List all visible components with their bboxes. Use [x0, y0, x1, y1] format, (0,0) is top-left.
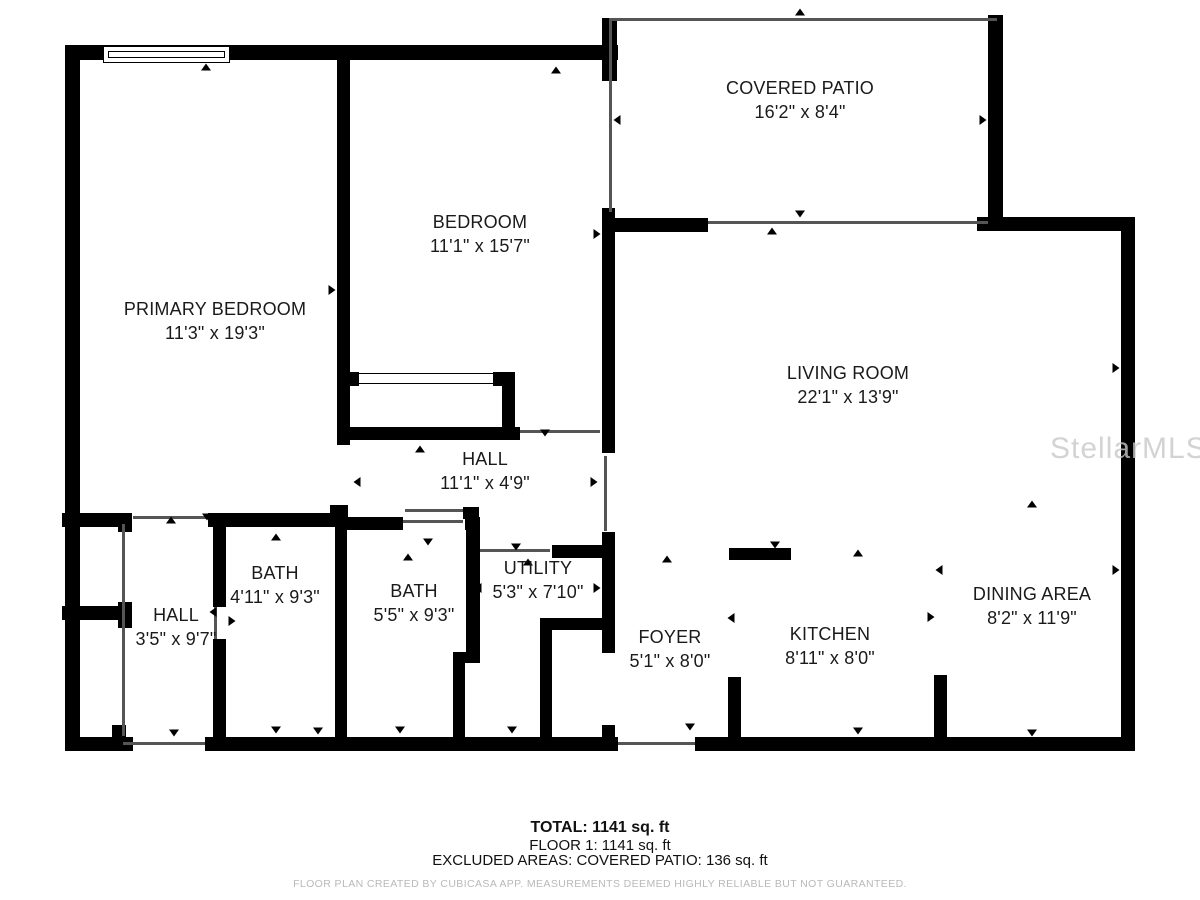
dimension-arrow-icon	[395, 727, 405, 734]
dimension-arrow-icon	[551, 67, 561, 74]
dimension-arrow-icon	[329, 285, 336, 295]
wall-segment	[988, 15, 1003, 228]
wall-segment	[540, 618, 604, 630]
wall-segment	[335, 517, 347, 737]
wall-segment	[695, 737, 1135, 751]
room-dims: 11'3" x 19'3"	[124, 321, 306, 345]
dimension-arrow-icon	[767, 228, 777, 235]
wall-segment	[65, 45, 80, 750]
room-dims: 8'2" x 11'9"	[973, 606, 1091, 630]
total-area-text: TOTAL: 1141 sq. ft	[0, 819, 1200, 837]
dimension-arrow-icon	[403, 554, 413, 561]
disclaimer-text: FLOOR PLAN CREATED BY CUBICASA APP. MEAS…	[0, 878, 1200, 890]
room-name: PRIMARY BEDROOM	[124, 297, 306, 321]
wall-segment	[934, 675, 947, 737]
dimension-arrow-icon	[685, 724, 695, 731]
room-label-bath-1: BATH 4'11" x 9'3"	[230, 561, 320, 609]
dimension-arrow-icon	[72, 300, 79, 310]
room-label-hall-upper: HALL 11'1" x 4'9"	[440, 447, 530, 495]
excluded-area-text: EXCLUDED AREAS: COVERED PATIO: 136 sq. f…	[0, 852, 1200, 869]
dimension-arrow-icon	[271, 727, 281, 734]
room-name: BATH	[230, 561, 320, 585]
room-dims: 22'1" x 13'9"	[787, 385, 909, 409]
dimension-arrow-icon	[354, 477, 361, 487]
dimension-arrow-icon	[728, 613, 735, 623]
wall-segment	[345, 427, 520, 440]
dimension-arrow-icon	[475, 583, 482, 593]
dimension-arrow-icon	[594, 583, 601, 593]
dimension-arrow-icon	[415, 446, 425, 453]
dimension-arrow-icon	[795, 9, 805, 16]
dimension-arrow-icon	[1027, 730, 1037, 737]
wall-segment	[1121, 217, 1135, 750]
wall-segment	[602, 532, 615, 653]
room-label-primary-bedroom: PRIMARY BEDROOM 11'3" x 19'3"	[124, 297, 306, 345]
opening-line	[708, 221, 988, 224]
closet-shelf-line	[358, 373, 494, 384]
opening-line	[604, 456, 607, 531]
room-name: UTILITY	[492, 556, 583, 580]
room-label-hall-lower: HALL 3'5" x 9'7"	[136, 603, 217, 651]
room-label-kitchen: KITCHEN 8'11" x 8'0"	[785, 622, 875, 670]
opening-line	[123, 742, 205, 745]
room-label-foyer: FOYER 5'1" x 8'0"	[630, 625, 711, 673]
dimension-arrow-icon	[608, 363, 615, 373]
dimension-arrow-icon	[980, 115, 987, 125]
dimension-arrow-icon	[591, 477, 598, 487]
dimension-arrow-icon	[614, 115, 621, 125]
wall-segment	[977, 217, 1135, 231]
room-name: DINING AREA	[973, 582, 1091, 606]
dimension-arrow-icon	[853, 728, 863, 735]
stellar-mls-watermark: StellarMLS	[1050, 432, 1200, 466]
dimension-arrow-icon	[511, 544, 521, 551]
dimension-arrow-icon	[770, 542, 780, 549]
wall-segment	[337, 60, 350, 445]
opening-line	[405, 509, 463, 512]
room-dims: 3'5" x 9'7"	[136, 627, 217, 651]
wall-segment	[602, 218, 708, 232]
dimension-arrow-icon	[1113, 363, 1120, 373]
dimension-arrow-icon	[166, 517, 176, 524]
room-dims: 11'1" x 4'9"	[440, 471, 530, 495]
dimension-arrow-icon	[271, 534, 281, 541]
room-name: COVERED PATIO	[726, 76, 874, 100]
dimension-arrow-icon	[229, 616, 236, 626]
wall-segment	[453, 663, 465, 737]
room-dims: 5'5" x 9'3"	[374, 603, 455, 627]
dimension-arrow-icon	[1113, 565, 1120, 575]
floor-plan-canvas: COVERED PATIO 16'2" x 8'4" BEDROOM 11'1"…	[0, 0, 1200, 900]
room-label-covered-patio: COVERED PATIO 16'2" x 8'4"	[726, 76, 874, 124]
room-dims: 5'3" x 7'10"	[492, 580, 583, 604]
room-dims: 16'2" x 8'4"	[726, 100, 874, 124]
dimension-arrow-icon	[202, 514, 212, 521]
wall-segment	[118, 513, 132, 532]
room-label-living-room: LIVING ROOM 22'1" x 13'9"	[787, 361, 909, 409]
room-name: BATH	[374, 579, 455, 603]
room-dims: 8'11" x 8'0"	[785, 646, 875, 670]
dimension-arrow-icon	[795, 211, 805, 218]
opening-line	[609, 20, 612, 212]
room-label-bath-2: BATH 5'5" x 9'3"	[374, 579, 455, 627]
room-name: FOYER	[630, 625, 711, 649]
dimension-arrow-icon	[423, 539, 433, 546]
room-label-bedroom: BEDROOM 11'1" x 15'7"	[430, 210, 530, 258]
room-name: HALL	[440, 447, 530, 471]
room-name: HALL	[136, 603, 217, 627]
dimension-arrow-icon	[169, 730, 179, 737]
window-inner-pane	[108, 51, 225, 58]
wall-segment	[118, 602, 132, 628]
opening-line	[403, 520, 463, 523]
wall-segment	[728, 677, 741, 737]
wall-segment	[213, 639, 226, 737]
room-name: KITCHEN	[785, 622, 875, 646]
wall-segment	[335, 517, 403, 530]
wall-segment	[213, 517, 226, 607]
dimension-arrow-icon	[201, 64, 211, 71]
dimension-arrow-icon	[928, 612, 935, 622]
dimension-arrow-icon	[540, 430, 550, 437]
wall-segment	[602, 208, 615, 453]
wall-segment	[602, 725, 615, 738]
dimension-arrow-icon	[1027, 501, 1037, 508]
room-dims: 5'1" x 8'0"	[630, 649, 711, 673]
room-name: LIVING ROOM	[787, 361, 909, 385]
opening-line	[618, 742, 695, 745]
dimension-arrow-icon	[594, 229, 601, 239]
opening-line	[122, 524, 125, 736]
opening-line	[609, 18, 997, 21]
wall-segment	[540, 630, 552, 737]
dimension-arrow-icon	[313, 728, 323, 735]
dimension-arrow-icon	[343, 229, 350, 239]
wall-segment	[729, 548, 791, 560]
room-label-dining-area: DINING AREA 8'2" x 11'9"	[973, 582, 1091, 630]
dimension-arrow-icon	[507, 727, 517, 734]
room-name: BEDROOM	[430, 210, 530, 234]
wall-segment	[345, 372, 359, 386]
wall-segment	[205, 737, 618, 751]
dimension-arrow-icon	[853, 550, 863, 557]
room-dims: 11'1" x 15'7"	[430, 234, 530, 258]
dimension-arrow-icon	[936, 565, 943, 575]
room-label-utility: UTILITY 5'3" x 7'10"	[492, 556, 583, 604]
dimension-arrow-icon	[608, 640, 615, 650]
room-dims: 4'11" x 9'3"	[230, 585, 320, 609]
wall-segment	[453, 652, 480, 663]
opening-line	[520, 430, 600, 433]
wall-segment	[208, 513, 348, 527]
dimension-arrow-icon	[662, 556, 672, 563]
